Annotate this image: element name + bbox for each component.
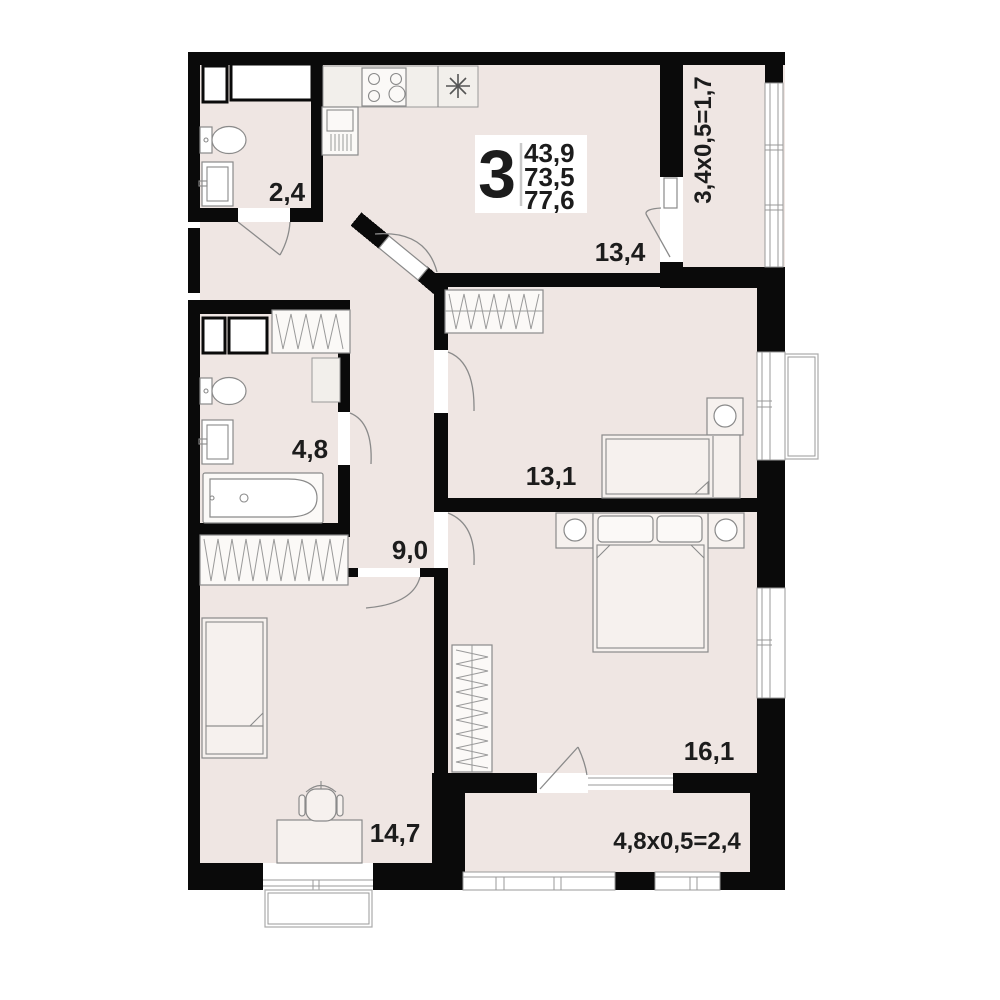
- window-bedroom-1: [757, 352, 818, 460]
- room-label-wc: 2,4: [269, 177, 306, 207]
- room-label-bedroom-2: 16,1: [684, 736, 735, 766]
- desk-icon: [277, 820, 362, 863]
- wardrobe-icon: [272, 310, 350, 353]
- floorplan-canvas: 3 43,9 73,5 77,6 2,4 13,4 4,8 13,1 9,0 1…: [0, 0, 1000, 1000]
- toilet-icon: [200, 127, 246, 154]
- bathroom-cabinet: [312, 358, 340, 402]
- fridge-icon: [322, 107, 358, 155]
- window-sill: [785, 354, 818, 459]
- shaft-box: [203, 66, 227, 102]
- info-area-total: 77,6: [524, 185, 575, 215]
- info-box: 3 43,9 73,5 77,6: [475, 135, 587, 215]
- shaft-box: [203, 318, 225, 353]
- room-label-bathroom: 4,8: [292, 434, 328, 464]
- shaft-box: [231, 64, 312, 100]
- washbasin-icon: [199, 162, 233, 206]
- wardrobe-icon: [452, 645, 492, 772]
- window-bedroom-3: [263, 863, 373, 927]
- bathtub-icon: [203, 473, 323, 523]
- stove-icon: [362, 68, 406, 106]
- wardrobe-icon: [200, 535, 348, 585]
- window-balcony-top: [765, 83, 783, 267]
- wardrobe-icon: [445, 290, 543, 333]
- window-bedroom-2-balcony: [588, 775, 673, 790]
- room-label-kitchen-living: 13,4: [595, 237, 646, 267]
- room-label-hallway: 9,0: [392, 535, 428, 565]
- shaft-box: [229, 318, 267, 353]
- toilet-icon: [200, 378, 246, 405]
- info-rooms-count: 3: [478, 136, 516, 212]
- bed-single-icon: [202, 618, 267, 758]
- floorplan-svg: 3 43,9 73,5 77,6 2,4 13,4 4,8 13,1 9,0 1…: [0, 0, 1000, 1000]
- bed-double-icon: [593, 513, 708, 652]
- nightstand-icon: [707, 398, 743, 435]
- nightstand-icon: [556, 513, 593, 548]
- window-balcony-bottom: [463, 872, 720, 890]
- balcony-top-label: 3,4x0,5=1,7: [690, 76, 717, 203]
- washbasin-icon: [199, 420, 233, 464]
- window-bedroom-2: [757, 588, 785, 698]
- room-label-bedroom-3: 14,7: [370, 818, 421, 848]
- nightstand-icon: [708, 513, 744, 548]
- window-ledge: [265, 890, 372, 927]
- balcony-bottom-label: 4,8x0,5=2,4: [613, 828, 741, 855]
- bed-single-icon: [602, 435, 740, 498]
- room-label-bedroom-1: 13,1: [526, 461, 577, 491]
